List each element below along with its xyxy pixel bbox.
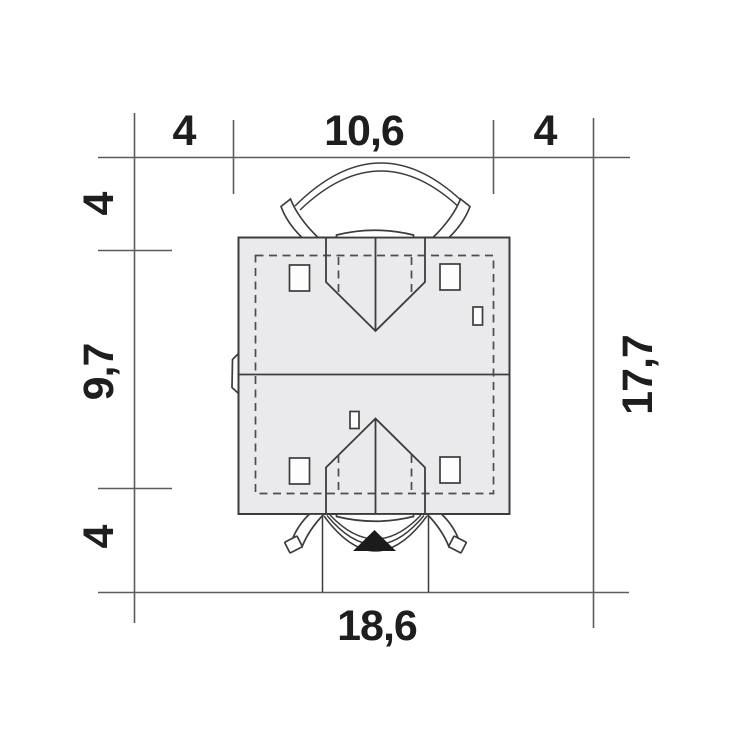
front-entry-landscaping	[281, 163, 470, 238]
dim-label-top-right: 4	[534, 107, 558, 155]
front-arc-outer	[295, 163, 467, 206]
vent-stack-right	[473, 307, 483, 325]
rear-entry-landscaping	[285, 514, 467, 553]
dim-label-top-center: 10,6	[324, 107, 404, 155]
dim-label-bottom: 18,6	[337, 602, 417, 650]
front-curved-wall-left	[281, 199, 318, 238]
front-arc-inner	[300, 171, 462, 210]
dim-label-right: 17,7	[614, 335, 662, 415]
dim-label-left-center: 9,7	[75, 344, 123, 401]
chimney-bottom-right	[440, 457, 460, 483]
entrance-walkway-lines	[323, 514, 429, 592]
front-door-canopy	[337, 230, 414, 237]
dim-label-top-left: 4	[173, 107, 197, 155]
chimney-bottom-left	[290, 458, 310, 484]
vent-stack-center	[350, 412, 359, 429]
chimney-top-right	[440, 264, 460, 290]
roof-outline	[239, 238, 510, 515]
chimney-top-left	[290, 265, 310, 291]
site-plan-canvas: 4 10,6 4 4 9,7 4 17,7 18,6	[0, 0, 750, 750]
dim-label-left-bottom: 4	[75, 524, 123, 548]
front-curved-wall-right	[433, 199, 470, 238]
site-plan-page: 4 10,6 4 4 9,7 4 17,7 18,6	[0, 0, 750, 750]
rear-door-canopy	[337, 514, 414, 521]
entrance-marker-icon	[353, 530, 396, 551]
dim-label-left-top: 4	[75, 191, 123, 215]
